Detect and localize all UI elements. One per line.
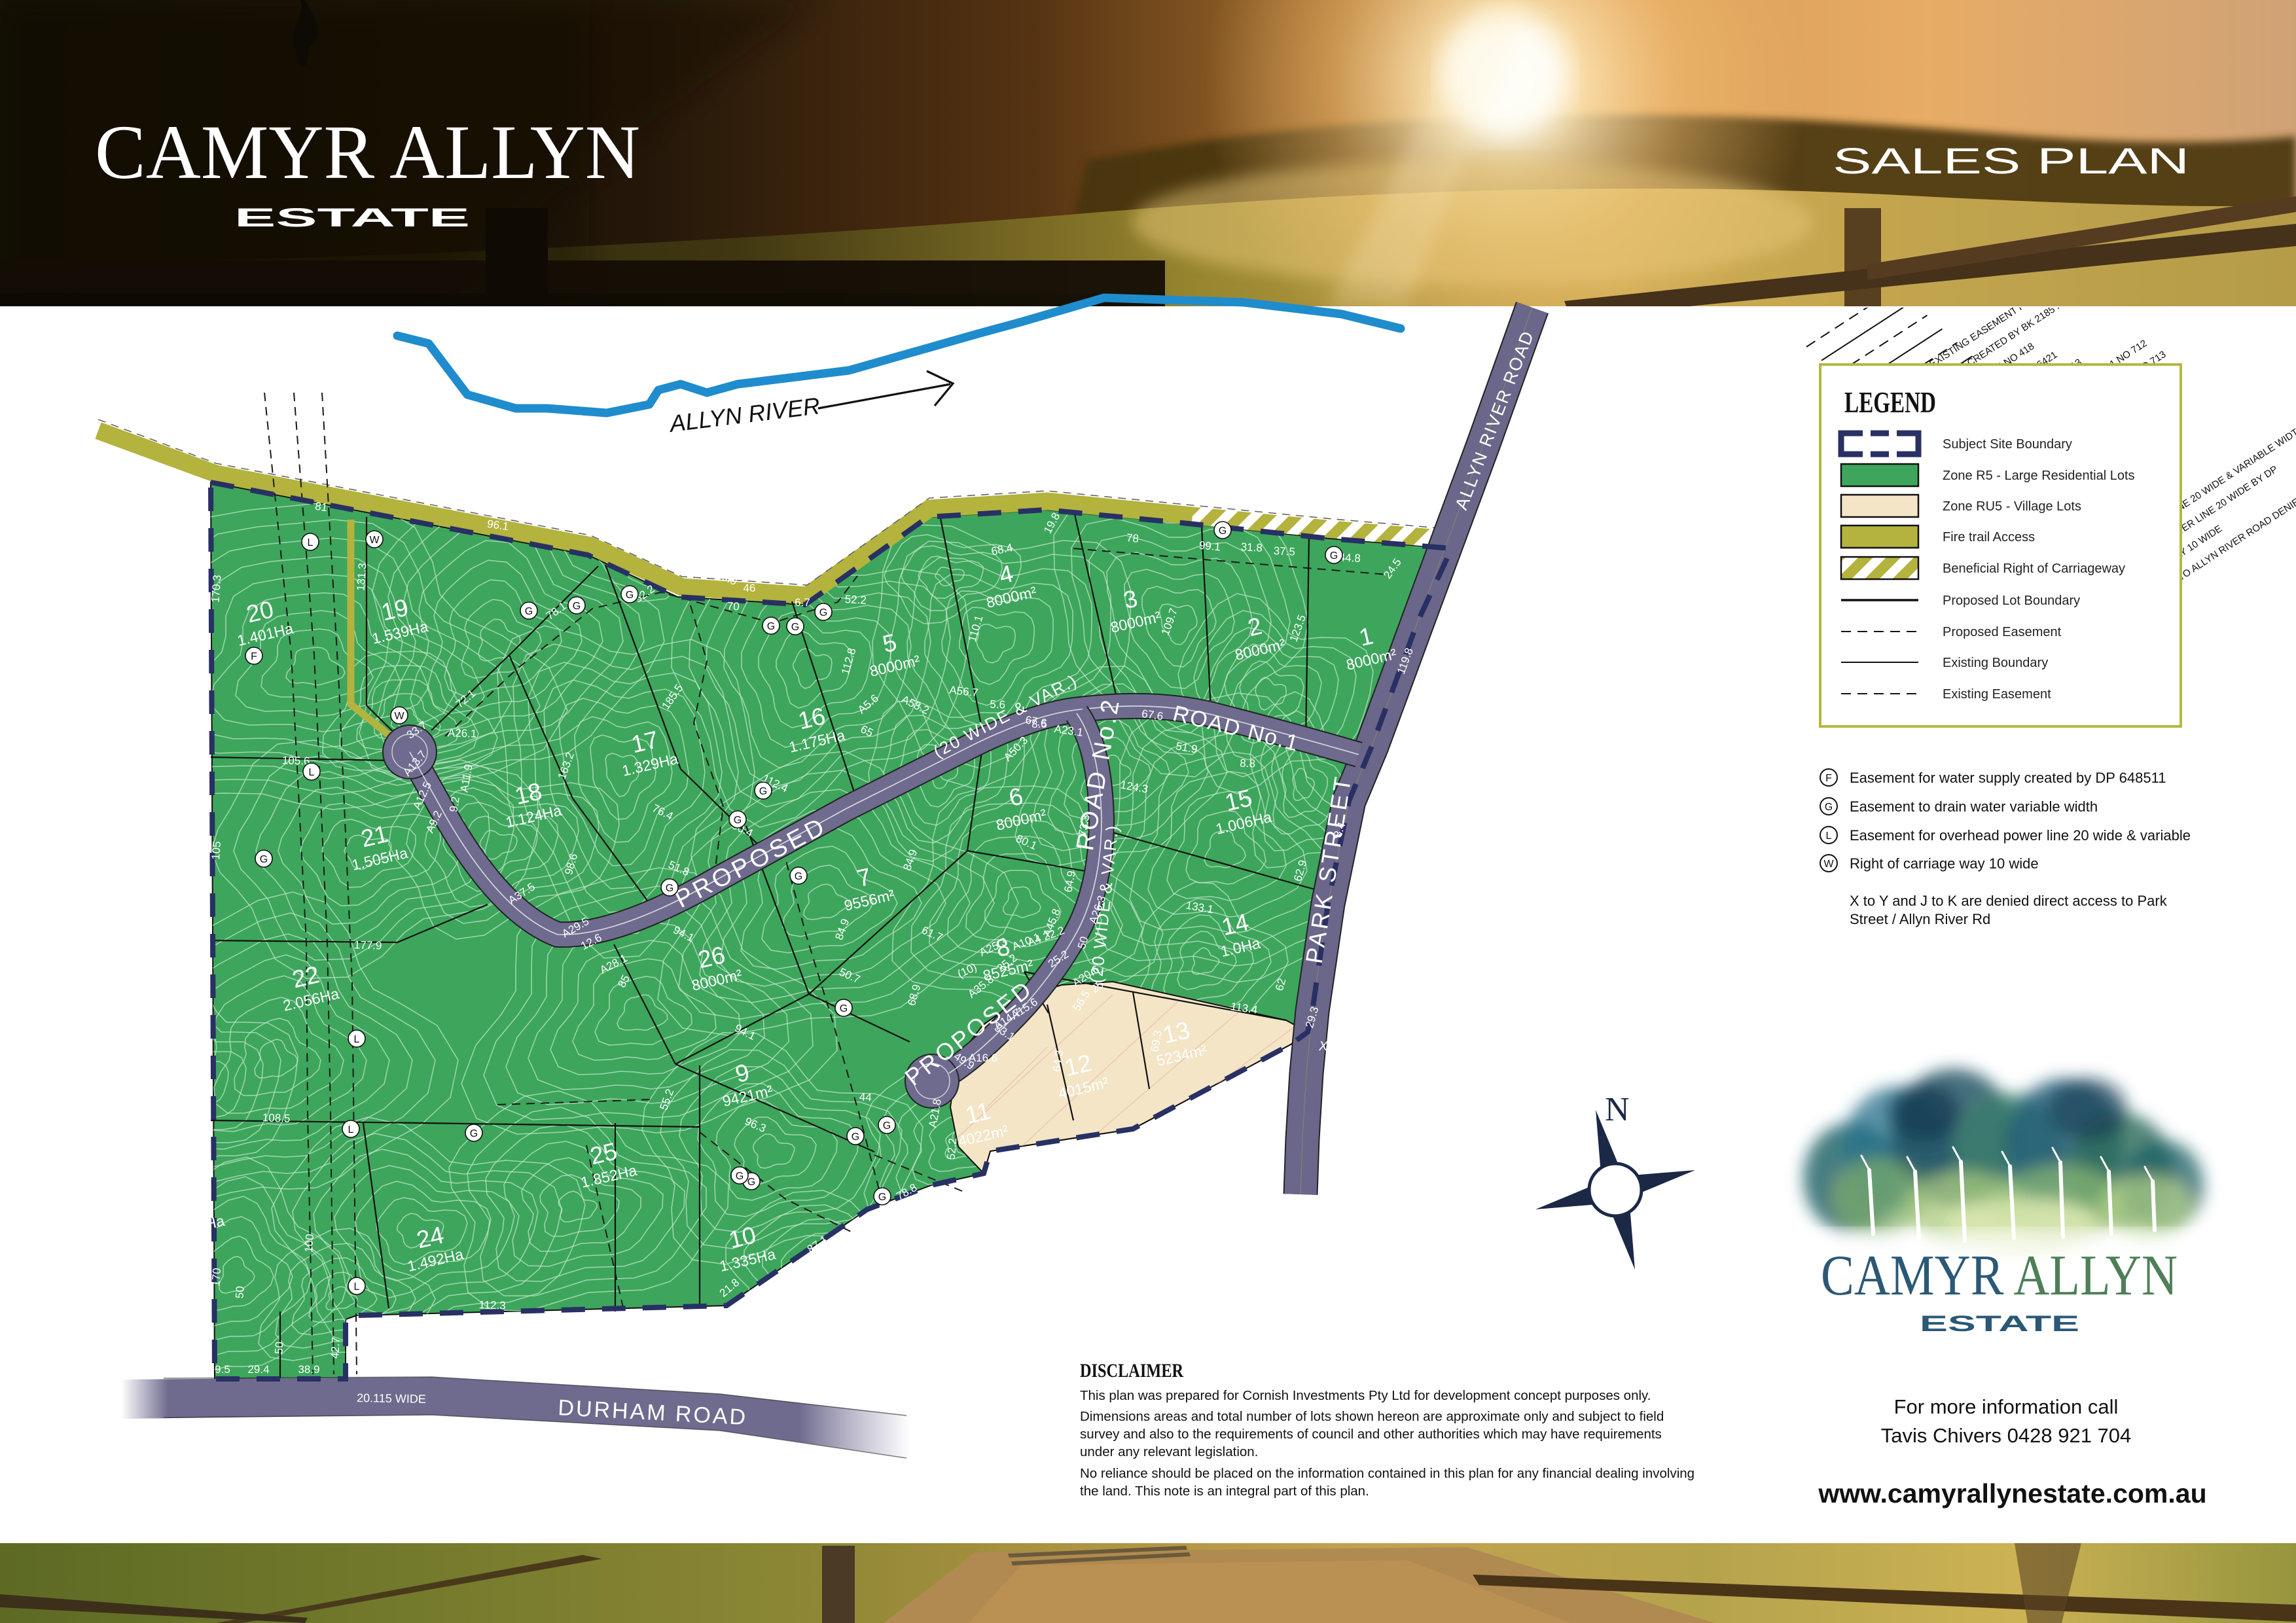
svg-text:L: L — [354, 1034, 360, 1045]
svg-text:J: J — [1379, 776, 1387, 790]
svg-text:9.5: 9.5 — [215, 1363, 230, 1376]
svg-text:8.8: 8.8 — [1240, 757, 1255, 770]
svg-text:37.5: 37.5 — [1273, 544, 1295, 558]
svg-text:A26.1: A26.1 — [448, 726, 477, 740]
svg-text:G: G — [626, 590, 634, 601]
svg-text:G: G — [840, 1003, 848, 1014]
svg-text:46: 46 — [744, 582, 756, 594]
svg-text:Existing Easement: Existing Easement — [1943, 687, 2051, 702]
svg-text:Tavis Chivers 0428 921 704: Tavis Chivers 0428 921 704 — [1881, 1424, 2132, 1447]
svg-text:G: G — [736, 1171, 744, 1182]
svg-text:Proposed Lot Boundary: Proposed Lot Boundary — [1943, 594, 2080, 608]
svg-text:G: G — [795, 871, 802, 882]
svg-text:Proposed Easement: Proposed Easement — [1943, 625, 2062, 639]
svg-text:G: G — [883, 1120, 891, 1132]
svg-text:www.camyrallynestate.com.au: www.camyrallynestate.com.au — [1818, 1478, 2206, 1508]
svg-text:Dimensions areas and total num: Dimensions areas and total number of lot… — [1080, 1409, 1664, 1424]
svg-text:L: L — [308, 537, 314, 548]
svg-text:L: L — [309, 767, 315, 778]
svg-text:under any relevant legislation: under any relevant legislation. — [1080, 1444, 1258, 1459]
svg-text:G: G — [525, 606, 533, 617]
svg-text:99.1: 99.1 — [1198, 539, 1221, 554]
svg-text:23: 23 — [175, 1188, 207, 1220]
svg-text:SALES PLAN: SALES PLAN — [1833, 140, 2189, 181]
svg-text:105: 105 — [209, 841, 223, 861]
svg-text:100: 100 — [302, 1234, 316, 1253]
svg-text:72.1: 72.1 — [1010, 1167, 1033, 1182]
svg-text:L: L — [1826, 830, 1832, 842]
svg-text:Street / Allyn River Rd: Street / Allyn River Rd — [1850, 911, 1990, 927]
svg-text:For more information call: For more information call — [1894, 1395, 2119, 1418]
svg-text:44: 44 — [859, 1090, 872, 1103]
svg-text:31.8: 31.8 — [1240, 541, 1263, 554]
svg-text:Existing Boundary: Existing Boundary — [1943, 656, 2048, 670]
svg-text:170: 170 — [209, 1268, 223, 1287]
svg-text:52.2: 52.2 — [945, 1137, 960, 1160]
svg-text:6.7: 6.7 — [795, 596, 810, 609]
svg-text:This plan was prepared for Cor: This plan was prepared for Cornish Inves… — [1080, 1388, 1651, 1403]
svg-text:29.4: 29.4 — [247, 1363, 269, 1376]
svg-text:survey and also to the require: survey and also to the requirements of c… — [1080, 1427, 1662, 1442]
svg-text:38.9: 38.9 — [298, 1363, 319, 1376]
svg-text:G: G — [767, 621, 775, 632]
svg-text:Zone RU5 - Village Lots: Zone RU5 - Village Lots — [1943, 499, 2081, 514]
svg-text:W: W — [369, 535, 380, 546]
svg-text:81.4: 81.4 — [557, 1359, 579, 1373]
svg-text:K: K — [1463, 545, 1473, 560]
svg-text:ALLYN RIVER ROAD: ALLYN RIVER ROAD — [1451, 328, 1537, 512]
svg-text:112.3: 112.3 — [478, 1298, 506, 1311]
svg-text:170.3: 170.3 — [209, 575, 224, 603]
svg-text:91.4: 91.4 — [751, 1289, 774, 1302]
svg-text:N: N — [1605, 1091, 1630, 1128]
svg-text:G: G — [878, 1192, 886, 1203]
svg-text:CAMYR ALLYN: CAMYR ALLYN — [95, 109, 640, 195]
svg-text:ESTATE: ESTATE — [234, 204, 470, 232]
svg-text:Beneficial Right of Carriagewa: Beneficial Right of Carriageway — [1943, 562, 2125, 576]
svg-text:G: G — [759, 786, 767, 797]
svg-text:G: G — [573, 601, 581, 612]
svg-text:ESTATE: ESTATE — [1920, 1311, 2079, 1336]
svg-text:Easement to drain water variab: Easement to drain water variable width — [1850, 798, 2098, 815]
svg-text:G: G — [1825, 802, 1833, 813]
svg-text:78: 78 — [1126, 531, 1139, 545]
svg-text:LEGEND: LEGEND — [1844, 385, 1936, 419]
svg-text:G: G — [1330, 550, 1338, 562]
svg-text:X: X — [1318, 1039, 1328, 1054]
svg-text:Easement for overhead power li: Easement for overhead power line 20 wide… — [1850, 827, 2191, 844]
svg-text:177.9: 177.9 — [354, 938, 382, 952]
svg-text:G: G — [470, 1128, 478, 1139]
svg-text:X to Y and J to K are denied d: X to Y and J to K are denied direct acce… — [1850, 893, 2168, 909]
svg-text:G: G — [734, 815, 742, 826]
svg-text:8.5: 8.5 — [1031, 718, 1047, 730]
svg-text:9.2: 9.2 — [447, 796, 462, 813]
svg-text:Subject Site Boundary: Subject Site Boundary — [1943, 437, 2072, 452]
svg-text:L: L — [348, 1124, 354, 1135]
svg-text:52.2: 52.2 — [844, 593, 867, 607]
svg-text:G: G — [666, 883, 673, 894]
svg-text:Fire trail Access: Fire trail Access — [1943, 530, 2035, 544]
svg-text:50: 50 — [233, 1286, 246, 1299]
svg-text:42.7: 42.7 — [329, 1336, 342, 1359]
svg-text:No reliance should be placed o: No reliance should be placed on the info… — [1080, 1466, 1695, 1481]
svg-text:81: 81 — [314, 500, 328, 514]
svg-text:G: G — [819, 607, 827, 618]
svg-text:ALLYN RIVER: ALLYN RIVER — [667, 392, 821, 437]
svg-text:20.115 WIDE: 20.115 WIDE — [357, 1391, 426, 1406]
svg-text:Easement for water supply crea: Easement for water supply created by DP … — [1850, 770, 2166, 786]
svg-text:G: G — [852, 1132, 859, 1143]
svg-text:L: L — [354, 1281, 360, 1293]
svg-text:W: W — [1823, 859, 1834, 870]
svg-text:F: F — [1825, 773, 1832, 784]
svg-text:DISCLAIMER: DISCLAIMER — [1080, 1360, 1183, 1382]
svg-text:G: G — [747, 1177, 755, 1188]
svg-text:W: W — [394, 711, 404, 722]
svg-text:61: 61 — [1122, 1132, 1136, 1145]
svg-text:Zone R5 - Large Residential Lo: Zone R5 - Large Residential Lots — [1943, 469, 2135, 483]
svg-text:G: G — [791, 622, 799, 633]
svg-text:G: G — [1219, 526, 1227, 537]
svg-text:70: 70 — [726, 600, 740, 613]
svg-text:108.5: 108.5 — [262, 1111, 291, 1124]
svg-text:the land. This note is an inte: the land. This note is an integral part … — [1080, 1484, 1369, 1499]
svg-text:5.6: 5.6 — [990, 698, 1005, 711]
svg-text:50: 50 — [272, 1342, 285, 1355]
svg-text:F: F — [251, 651, 257, 662]
svg-text:CAMYR ALLYN: CAMYR ALLYN — [1821, 1244, 2178, 1308]
svg-text:Right of carriage way 10 wide: Right of carriage way 10 wide — [1850, 855, 2039, 872]
svg-text:131.3: 131.3 — [355, 563, 369, 592]
svg-text:G: G — [260, 854, 268, 865]
